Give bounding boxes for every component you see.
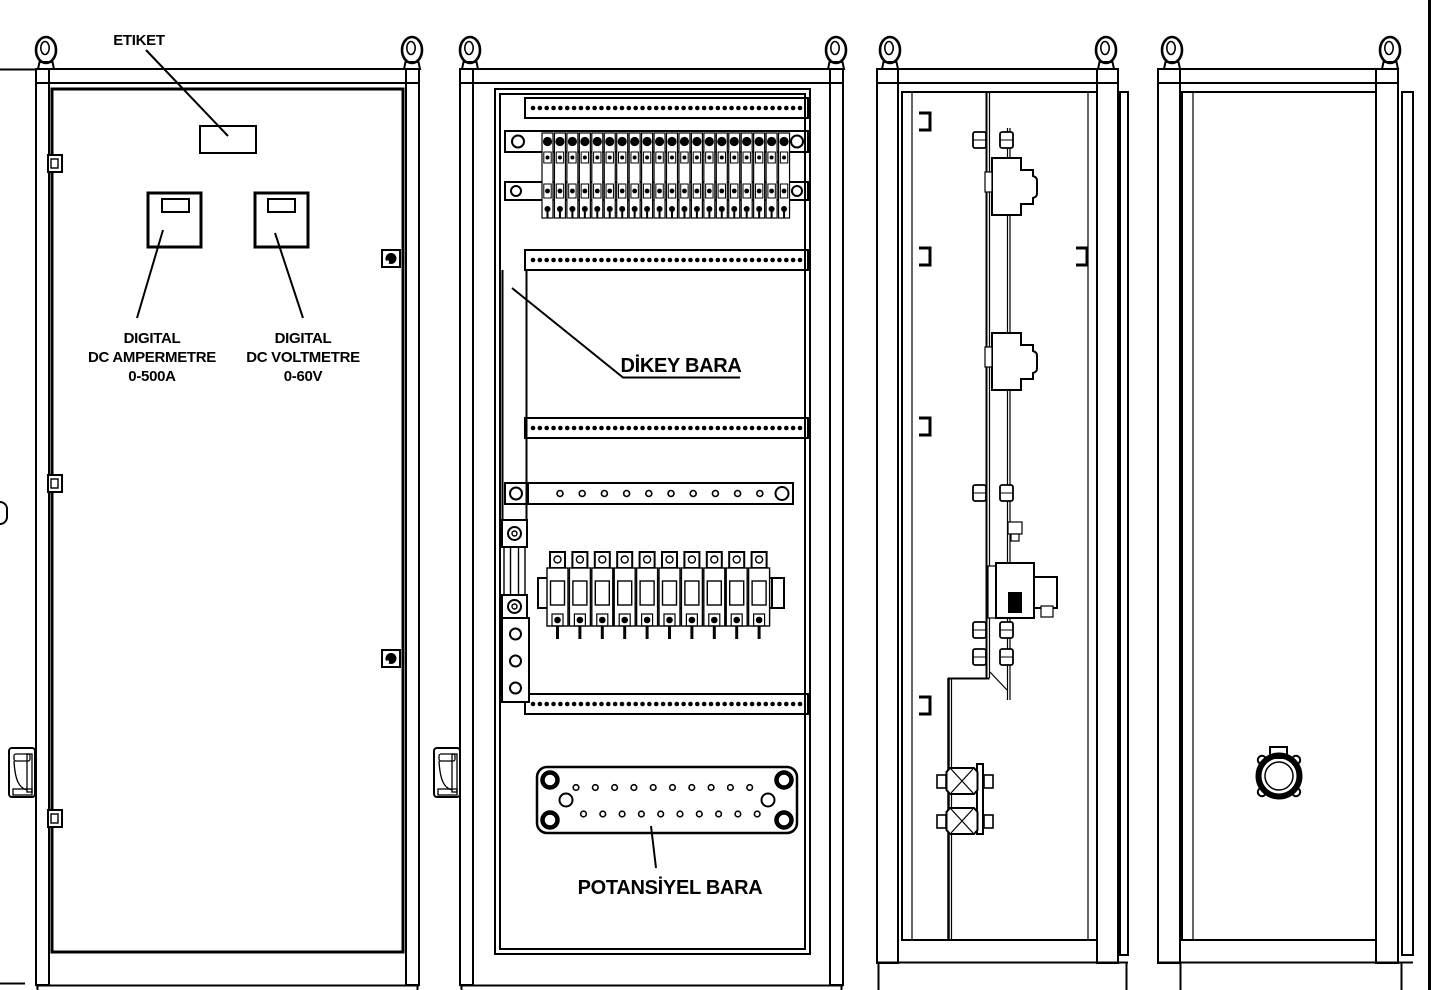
door-lock-cam bbox=[382, 650, 400, 667]
side-hole bbox=[762, 794, 775, 807]
terminal-block bbox=[554, 133, 565, 218]
fuse-unit bbox=[614, 552, 635, 639]
terminal-block bbox=[567, 133, 578, 218]
fuse-unit bbox=[592, 552, 613, 639]
busbar-hole bbox=[579, 491, 585, 497]
lifting-eyebolt-icon bbox=[1096, 37, 1116, 69]
terminal-block bbox=[542, 133, 553, 218]
lifting-eyebolts-layer bbox=[36, 37, 1400, 69]
terminal-block bbox=[741, 133, 752, 218]
corner-bolt bbox=[777, 773, 792, 788]
potential-hole bbox=[573, 785, 579, 791]
panel-side-view bbox=[877, 69, 1128, 990]
cabinet-door bbox=[52, 89, 403, 952]
opening-inner-frame bbox=[500, 94, 805, 949]
left-post bbox=[460, 69, 473, 985]
potential-hole bbox=[619, 811, 625, 817]
cad-drawing-canvas: ETIKET DIGITAL DC AMPERMETRE 0-500A DIGI… bbox=[0, 0, 1432, 990]
corner-bolt bbox=[543, 813, 558, 828]
ampermetre-label-line3: 0-500A bbox=[128, 368, 176, 385]
dc-voltmetre-display bbox=[268, 199, 295, 212]
potential-hole bbox=[593, 785, 599, 791]
lifting-eyebolt-icon bbox=[36, 37, 56, 69]
cable-duct-strip bbox=[525, 418, 808, 438]
busbar-hole bbox=[601, 491, 607, 497]
fuse-unit bbox=[547, 552, 568, 639]
fuse-unit bbox=[726, 552, 747, 639]
mounting-clip bbox=[919, 418, 930, 435]
terminal-block bbox=[604, 133, 615, 218]
fuse-unit bbox=[659, 552, 680, 639]
din-component-profile bbox=[992, 158, 1037, 215]
panel-rear-view bbox=[1158, 69, 1413, 990]
potential-hole bbox=[754, 811, 760, 817]
dc-voltmetre-meter bbox=[255, 193, 308, 247]
potential-hole bbox=[650, 785, 656, 791]
potential-hole bbox=[612, 785, 618, 791]
potential-hole bbox=[600, 811, 606, 817]
plate-fastener bbox=[973, 485, 1013, 501]
band-end-cap bbox=[772, 578, 784, 608]
fuse-unit bbox=[704, 552, 725, 639]
door-locks-layer bbox=[382, 250, 400, 667]
potential-hole bbox=[581, 811, 587, 817]
swing-handle bbox=[434, 748, 460, 797]
terminal-block bbox=[617, 133, 628, 218]
busbar-hole bbox=[735, 491, 741, 497]
cable-duct-strip bbox=[525, 98, 808, 118]
door-hinges-layer bbox=[48, 155, 62, 827]
mounting-clip bbox=[1076, 248, 1087, 265]
right-post bbox=[1097, 69, 1118, 963]
voltmetre-label-line2: DC VOLTMETRE bbox=[246, 349, 360, 366]
swing-handle bbox=[9, 748, 35, 797]
terminal-block bbox=[654, 133, 665, 218]
busbar-hole bbox=[557, 491, 563, 497]
busbar-hole bbox=[624, 491, 630, 497]
ampermetre-label-line1: DIGITAL bbox=[124, 330, 181, 347]
terminal-block bbox=[779, 133, 790, 218]
ampermetre-leader-line bbox=[137, 230, 163, 318]
busbar-hole bbox=[646, 491, 652, 497]
door-hinge bbox=[48, 475, 62, 492]
insulator-stack bbox=[937, 764, 993, 834]
cable-duct-strip bbox=[525, 250, 808, 270]
terminal-block bbox=[642, 133, 653, 218]
lifting-eyebolt-icon bbox=[826, 37, 846, 69]
left-post bbox=[877, 69, 898, 963]
door-hinge bbox=[48, 155, 62, 172]
top-rail bbox=[877, 69, 1118, 83]
left-post bbox=[36, 69, 49, 985]
mounting-clip bbox=[919, 248, 930, 265]
round-panel-connector bbox=[1258, 747, 1300, 797]
lifting-eyebolt-icon bbox=[460, 37, 480, 69]
right-post bbox=[830, 69, 843, 985]
terminal-block bbox=[704, 133, 715, 218]
rail-screw-hole bbox=[512, 136, 524, 148]
dikey-bara-busbar bbox=[502, 270, 529, 702]
din-component-profile bbox=[992, 333, 1037, 390]
etiket-label: ETIKET bbox=[113, 32, 165, 49]
side-hole bbox=[560, 794, 573, 807]
potential-hole bbox=[735, 811, 741, 817]
door-edge-overhang bbox=[1402, 92, 1413, 955]
fuse-unit bbox=[681, 552, 702, 639]
plate-fastener bbox=[973, 132, 1013, 148]
plate-fastener bbox=[973, 649, 1013, 665]
top-rail bbox=[460, 69, 843, 83]
potential-hole bbox=[658, 811, 664, 817]
lifting-eyebolt-icon bbox=[402, 37, 422, 69]
inner-wall-frame bbox=[1182, 92, 1376, 940]
terminal-block bbox=[729, 133, 740, 218]
voltmetre-label-line1: DIGITAL bbox=[275, 330, 332, 347]
terminal-block bbox=[691, 133, 702, 218]
terminal-block bbox=[629, 133, 640, 218]
rail-screw-hole bbox=[792, 186, 802, 196]
standoff-insulator bbox=[937, 768, 993, 794]
busbar-hole bbox=[757, 491, 763, 497]
potential-hole bbox=[697, 811, 703, 817]
potential-hole bbox=[708, 785, 714, 791]
panel-front-closed-view: ETIKET DIGITAL DC AMPERMETRE 0-500A DIGI… bbox=[36, 32, 419, 990]
standoff-insulator bbox=[937, 808, 993, 834]
rail-screw-hole bbox=[511, 186, 521, 196]
mounting-clip bbox=[919, 113, 930, 130]
dikey-bara-label: DİKEY BARA bbox=[620, 354, 741, 377]
potential-hole bbox=[716, 811, 722, 817]
potansiyel-bara-label: POTANSİYEL BARA bbox=[578, 876, 763, 899]
potential-hole bbox=[631, 785, 637, 791]
top-rail bbox=[1158, 69, 1398, 83]
lifting-eyebolt-icon bbox=[1162, 37, 1182, 69]
fuse-unit bbox=[749, 552, 770, 639]
terminal-block bbox=[679, 133, 690, 218]
rail-screw-hole bbox=[791, 136, 803, 148]
corner-bolt bbox=[777, 813, 792, 828]
potential-hole bbox=[747, 785, 753, 791]
terminal-block bbox=[579, 133, 590, 218]
door-lock-cam bbox=[382, 250, 400, 267]
potential-hole bbox=[639, 811, 645, 817]
terminal-block-row bbox=[542, 133, 790, 218]
potential-hole bbox=[670, 785, 676, 791]
voltmetre-label-line3: 0-60V bbox=[284, 368, 323, 385]
fuse-unit bbox=[569, 552, 590, 639]
potential-hole bbox=[677, 811, 683, 817]
potential-bar-holes bbox=[573, 785, 760, 817]
door-hinge bbox=[48, 810, 62, 827]
lower-component-assembly bbox=[988, 522, 1057, 618]
fuse-unit bbox=[637, 552, 658, 639]
busbar-holes bbox=[557, 491, 763, 497]
etiket-nameplate bbox=[200, 126, 256, 153]
cabinet-technical-drawing: ETIKET DIGITAL DC AMPERMETRE 0-500A DIGI… bbox=[0, 0, 1432, 990]
potential-hole bbox=[728, 785, 734, 791]
ampermetre-label-line2: DC AMPERMETRE bbox=[88, 349, 216, 366]
busbar-hole bbox=[690, 491, 696, 497]
left-cut-hinge-fragment bbox=[0, 502, 7, 524]
plate-fastener bbox=[973, 622, 1013, 638]
terminal-block bbox=[667, 133, 678, 218]
fuse-row-assembly bbox=[538, 552, 784, 639]
right-post bbox=[406, 69, 419, 985]
lifting-eyebolt-icon bbox=[1380, 37, 1400, 69]
etiket-leader-line bbox=[146, 50, 228, 136]
terminal-block bbox=[592, 133, 603, 218]
potential-hole bbox=[689, 785, 695, 791]
dc-ampermetre-display bbox=[162, 199, 189, 212]
dc-ampermetre-meter bbox=[148, 193, 201, 247]
door-edge-overhang bbox=[1120, 92, 1128, 955]
horizontal-drilled-busbar bbox=[505, 483, 793, 504]
mounting-clip bbox=[919, 697, 930, 714]
busbar-hole bbox=[668, 491, 674, 497]
panel-front-open-view: DİKEY BARA POTANSİYEL BA bbox=[460, 69, 843, 990]
left-post bbox=[1158, 69, 1180, 963]
inner-wall-frame bbox=[902, 92, 1097, 940]
terminal-block bbox=[716, 133, 727, 218]
busbar-hole bbox=[712, 491, 718, 497]
corner-bolt bbox=[543, 773, 558, 788]
terminal-block bbox=[766, 133, 777, 218]
lifting-eyebolt-icon bbox=[880, 37, 900, 69]
potansiyel-bara-plate bbox=[537, 767, 797, 833]
right-post bbox=[1376, 69, 1398, 963]
door-handles-layer bbox=[9, 748, 460, 797]
terminal-block bbox=[754, 133, 765, 218]
top-rail bbox=[36, 69, 419, 83]
cable-duct-strip bbox=[525, 694, 808, 714]
